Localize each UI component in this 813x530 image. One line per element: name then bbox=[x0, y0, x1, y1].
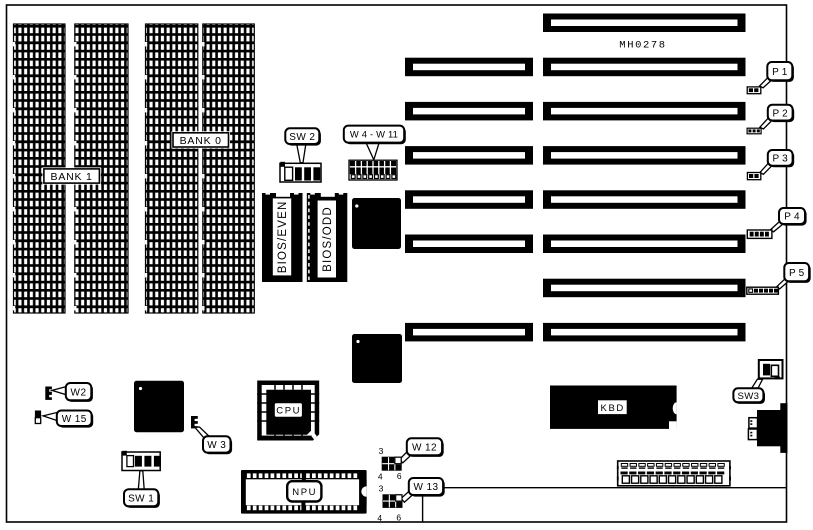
svg-text:3: 3 bbox=[379, 446, 384, 456]
svg-text:W 13: W 13 bbox=[413, 482, 438, 493]
svg-text:W 15: W 15 bbox=[62, 414, 87, 425]
svg-text:P 4: P 4 bbox=[784, 212, 800, 223]
svg-text:NPU: NPU bbox=[292, 487, 317, 498]
svg-text:W2: W2 bbox=[71, 387, 87, 398]
svg-text:P 2: P 2 bbox=[772, 108, 788, 119]
svg-text:4: 4 bbox=[377, 513, 382, 523]
svg-text:W 12: W 12 bbox=[412, 442, 437, 453]
svg-text:MH0278: MH0278 bbox=[619, 40, 666, 52]
svg-text:6: 6 bbox=[397, 471, 402, 481]
svg-text:SW3: SW3 bbox=[738, 391, 760, 402]
svg-text:BANK 1: BANK 1 bbox=[51, 171, 93, 183]
svg-text:BANK 0: BANK 0 bbox=[180, 135, 222, 147]
svg-text:P 1: P 1 bbox=[772, 67, 788, 78]
svg-text:SW 2: SW 2 bbox=[289, 132, 315, 143]
svg-text:P 3: P 3 bbox=[772, 153, 788, 164]
svg-text:BIOS/EVEN: BIOS/EVEN bbox=[277, 201, 289, 274]
svg-text:4: 4 bbox=[378, 471, 383, 481]
svg-text:6: 6 bbox=[396, 512, 401, 522]
svg-text:W 3: W 3 bbox=[207, 440, 226, 451]
svg-text:CPU: CPU bbox=[276, 405, 301, 416]
svg-text:W 4 - W 11: W 4 - W 11 bbox=[350, 129, 398, 140]
svg-text:3: 3 bbox=[379, 483, 384, 493]
svg-text:P 5: P 5 bbox=[789, 268, 805, 279]
svg-text:BIOS/ODD: BIOS/ODD bbox=[322, 206, 334, 272]
svg-text:KBD: KBD bbox=[601, 403, 625, 414]
svg-text:SW 1: SW 1 bbox=[128, 493, 154, 504]
